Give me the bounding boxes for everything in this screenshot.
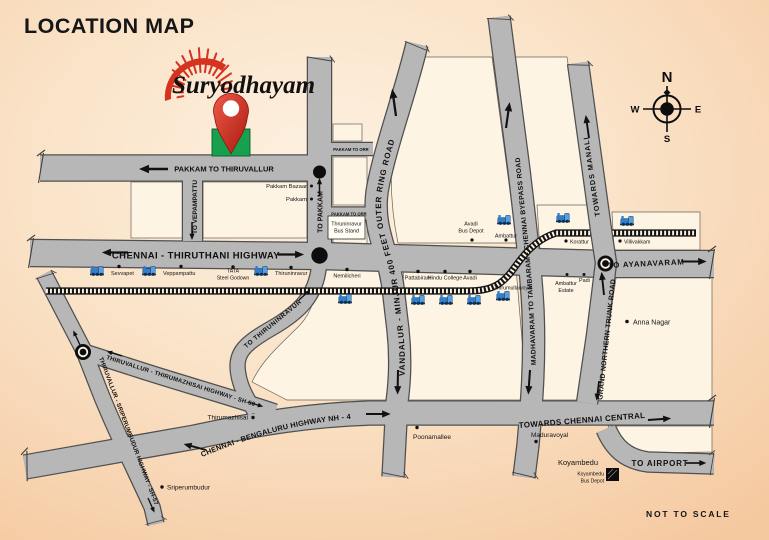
station-ambattur: Ambattur: [495, 234, 517, 240]
compass-w: W: [631, 105, 640, 116]
place-koyambedu-depot-1: Koyambedu: [577, 472, 604, 478]
place-anna-nagar: Anna Nagar: [633, 320, 671, 327]
compass-e: E: [695, 105, 701, 116]
road-label-pakkam-orr-1: PAKKAM TO ORR: [333, 147, 368, 152]
compass-n: N: [662, 69, 673, 86]
koyambedu-depot-icon: [606, 468, 619, 481]
place-ambattur-estate-2: Estate: [558, 288, 573, 294]
pin-hole: [223, 100, 239, 116]
road-label-to-pakkam: TO PAKKAM: [318, 191, 325, 233]
place-thirumazhisai: Thirumazhisai: [208, 415, 248, 422]
place-ambattur-estate-1: Ambattur: [555, 281, 577, 287]
place-maduravoyal: Maduravoyal: [531, 432, 569, 439]
station-thirumullaivoyal: Thirumullaivoyal: [494, 286, 532, 292]
road-label-chennai-thiruthani: CHENNAI - THIRUTHANI HIGHWAY: [112, 251, 280, 262]
station-thiruninravur: Thiruninravur: [275, 271, 308, 277]
bus-stand-label-1: Thruninravur: [331, 222, 362, 228]
scale-note: NOT TO SCALE: [646, 509, 731, 519]
place-pakkam: Pakkam: [286, 197, 307, 203]
location-map-svg: Thruninravur Bus Stand PAKKAM TO THIRUVA…: [0, 0, 769, 540]
place-avadi-depot-2: Bus Depot: [458, 229, 484, 235]
page-title: LOCATION MAP: [24, 14, 194, 38]
station-korattur: Korattur: [570, 240, 589, 246]
station-veppampattu: Veppampattu: [163, 271, 195, 277]
road-label-to-vepampattu: TO VEPAMPATTU: [192, 180, 199, 234]
logo-name: Suryodhayam: [172, 72, 315, 99]
station-hindu-college: Hindu College: [428, 276, 463, 282]
road-label-to-airport: TO AIRPORT: [632, 459, 689, 468]
station-nemilicheri: Nemilicheri: [333, 274, 360, 280]
road-label-pakkam-orr-2: PAKKAM TO ORR: [331, 211, 366, 216]
place-avadi-depot-1: Avadi: [464, 222, 477, 228]
compass-s: S: [664, 134, 670, 145]
road-label-pakkam-thiruvallur: PAKKAM TO THIRUVALLUR: [174, 165, 274, 174]
place-koyambedu-depot-2: Bus Depot: [581, 479, 605, 485]
station-sevvapet: Sevvapet: [111, 271, 134, 277]
station-villivakkam: Villivakkam: [624, 240, 651, 246]
place-sriperumbudur: Sriperumbudur: [167, 485, 211, 492]
station-avadi: Avadi: [463, 276, 477, 282]
station-tata-2: Steel Godown: [217, 276, 250, 282]
bus-stand-label-2: Bus Stand: [334, 229, 359, 235]
place-padi: Padi: [579, 278, 590, 284]
place-poonamallee: Poonamallee: [413, 434, 451, 441]
bus-stand-box: Thruninravur Bus Stand: [328, 216, 365, 239]
station-tata-1: TATA: [227, 269, 240, 275]
place-pakkam-bazaar: Pakkam Bazaar: [266, 184, 307, 190]
place-koyambedu: Koyambedu: [558, 458, 598, 467]
location-map-page: Thruninravur Bus Stand PAKKAM TO THIRUVA…: [0, 0, 769, 540]
